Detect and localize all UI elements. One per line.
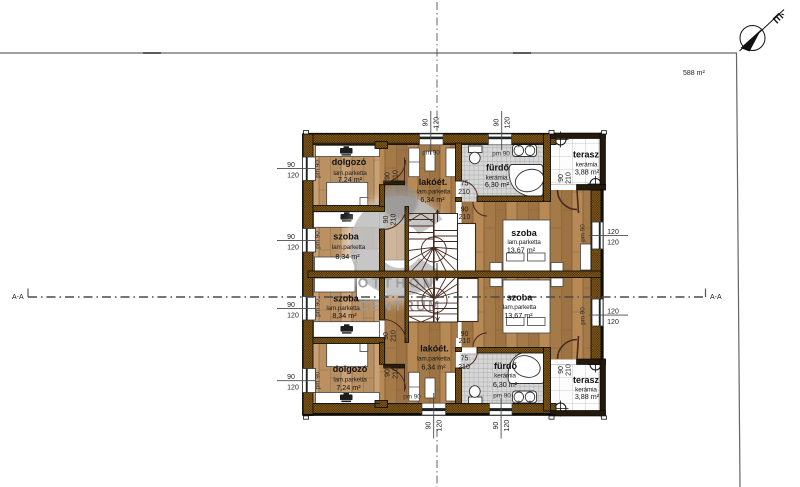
svg-text:pm 90: pm 90 — [492, 151, 510, 158]
svg-text:fürdő: fürdő — [494, 361, 517, 371]
svg-text:kerámia: kerámia — [494, 373, 516, 380]
svg-text:120: 120 — [607, 319, 619, 326]
svg-text:120: 120 — [504, 117, 511, 129]
svg-text:lam.parketta: lam.parketta — [503, 304, 537, 311]
svg-text:120: 120 — [434, 117, 441, 129]
svg-text:pm 90: pm 90 — [493, 393, 511, 400]
svg-text:90: 90 — [287, 162, 295, 169]
svg-text:210: 210 — [393, 170, 400, 182]
svg-text:90: 90 — [558, 174, 565, 182]
svg-text:A-A: A-A — [12, 294, 24, 301]
svg-text:pm 90: pm 90 — [580, 307, 587, 325]
svg-text:lakóét.: lakóét. — [419, 177, 448, 187]
svg-text:210: 210 — [566, 364, 573, 376]
svg-text:8,34 m²: 8,34 m² — [335, 252, 360, 261]
svg-text:13,67 m²: 13,67 m² — [504, 311, 533, 320]
svg-text:588 m²: 588 m² — [683, 70, 705, 77]
svg-text:lam.parketta: lam.parketta — [332, 244, 366, 251]
svg-text:210: 210 — [393, 367, 400, 379]
svg-text:120: 120 — [504, 420, 511, 432]
svg-text:210: 210 — [459, 214, 471, 221]
svg-text:A-A: A-A — [710, 294, 722, 301]
svg-text:6,34 m²: 6,34 m² — [421, 363, 446, 372]
svg-text:terasz: terasz — [573, 375, 600, 385]
svg-text:lakóét.: lakóét. — [420, 344, 449, 354]
svg-text:210: 210 — [391, 214, 398, 226]
svg-text:szoba: szoba — [333, 232, 360, 242]
svg-text:6,34 m²: 6,34 m² — [420, 195, 445, 204]
svg-text:120: 120 — [287, 312, 299, 319]
svg-text:120: 120 — [607, 309, 619, 316]
svg-text:120: 120 — [607, 240, 619, 247]
svg-text:terasz: terasz — [573, 150, 600, 160]
svg-text:7,24 m²: 7,24 m² — [336, 383, 361, 392]
svg-text:6,30 m²: 6,30 m² — [493, 380, 518, 389]
svg-text:90: 90 — [287, 302, 295, 309]
svg-text:pm 90: pm 90 — [315, 299, 322, 317]
svg-text:75: 75 — [461, 356, 469, 363]
svg-text:210: 210 — [458, 364, 470, 371]
svg-text:90: 90 — [493, 119, 500, 127]
svg-text:8,34 m²: 8,34 m² — [332, 311, 357, 320]
svg-text:120: 120 — [436, 420, 443, 432]
svg-text:90: 90 — [493, 422, 500, 430]
svg-text:pm 90: pm 90 — [422, 150, 440, 157]
svg-text:szoba: szoba — [333, 294, 360, 304]
svg-text:pm 90: pm 90 — [580, 224, 587, 242]
svg-text:3,88 m²: 3,88 m² — [575, 168, 600, 177]
svg-text:dolgozó: dolgozó — [333, 364, 368, 374]
svg-text:pm 90: pm 90 — [315, 371, 322, 389]
svg-text:7,24 m²: 7,24 m² — [338, 175, 363, 184]
svg-text:lam.parketta: lam.parketta — [417, 356, 451, 363]
svg-text:szoba: szoba — [511, 228, 538, 238]
svg-text:dolgozó: dolgozó — [332, 157, 367, 167]
svg-text:210: 210 — [459, 338, 471, 345]
svg-text:90: 90 — [558, 366, 565, 374]
svg-text:120: 120 — [607, 229, 619, 236]
svg-text:13,67 m²: 13,67 m² — [507, 246, 536, 255]
svg-text:90: 90 — [423, 119, 430, 127]
svg-text:90: 90 — [425, 422, 432, 430]
svg-text:210: 210 — [391, 330, 398, 342]
svg-text:120: 120 — [287, 244, 299, 251]
svg-text:90: 90 — [383, 216, 390, 224]
svg-text:90: 90 — [287, 374, 295, 381]
svg-text:75: 75 — [461, 181, 469, 188]
svg-text:90: 90 — [385, 369, 392, 377]
svg-text:90: 90 — [383, 332, 390, 340]
svg-text:szoba: szoba — [507, 293, 534, 303]
svg-text:90: 90 — [287, 234, 295, 241]
svg-text:fürdő: fürdő — [486, 163, 509, 173]
svg-text:pm 90: pm 90 — [315, 160, 322, 178]
svg-text:210: 210 — [458, 189, 470, 196]
svg-text:90: 90 — [385, 172, 392, 180]
svg-text:90: 90 — [461, 207, 469, 214]
svg-text:210: 210 — [566, 172, 573, 184]
svg-text:6,30 m²: 6,30 m² — [485, 180, 510, 189]
svg-text:pm 90: pm 90 — [315, 231, 322, 249]
svg-text:3,88 m²: 3,88 m² — [575, 392, 600, 401]
svg-text:120: 120 — [287, 173, 299, 180]
svg-text:pm 90: pm 90 — [403, 394, 421, 401]
svg-text:90: 90 — [461, 331, 469, 338]
svg-text:120: 120 — [287, 385, 299, 392]
